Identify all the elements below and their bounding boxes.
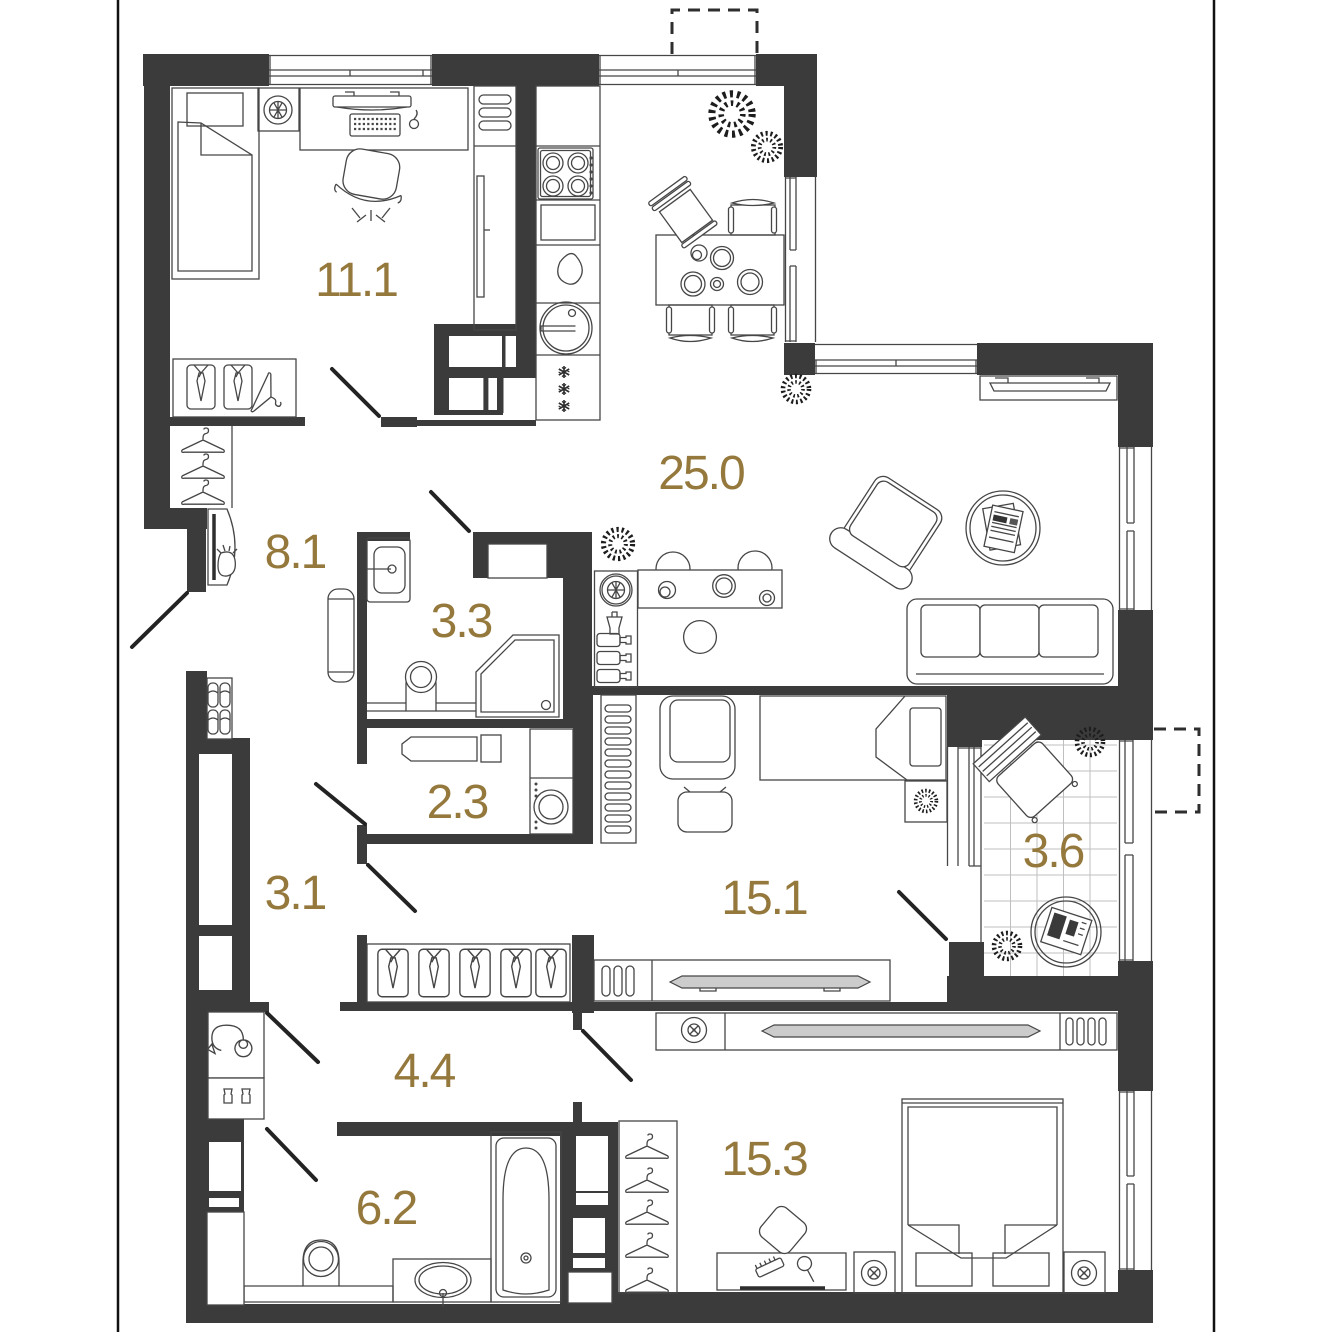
svg-text:8.1: 8.1 bbox=[265, 526, 326, 579]
svg-text:3.3: 3.3 bbox=[431, 595, 492, 648]
svg-text:15.3: 15.3 bbox=[721, 1133, 807, 1186]
svg-text:3.6: 3.6 bbox=[1023, 825, 1084, 878]
svg-text:6.2: 6.2 bbox=[356, 1182, 417, 1235]
svg-text:15.1: 15.1 bbox=[721, 872, 807, 925]
svg-text:3.1: 3.1 bbox=[265, 867, 326, 920]
svg-text:2.3: 2.3 bbox=[427, 776, 488, 829]
svg-text:11.1: 11.1 bbox=[315, 254, 397, 307]
svg-text:4.4: 4.4 bbox=[394, 1045, 456, 1098]
svg-text:25.0: 25.0 bbox=[658, 447, 744, 500]
